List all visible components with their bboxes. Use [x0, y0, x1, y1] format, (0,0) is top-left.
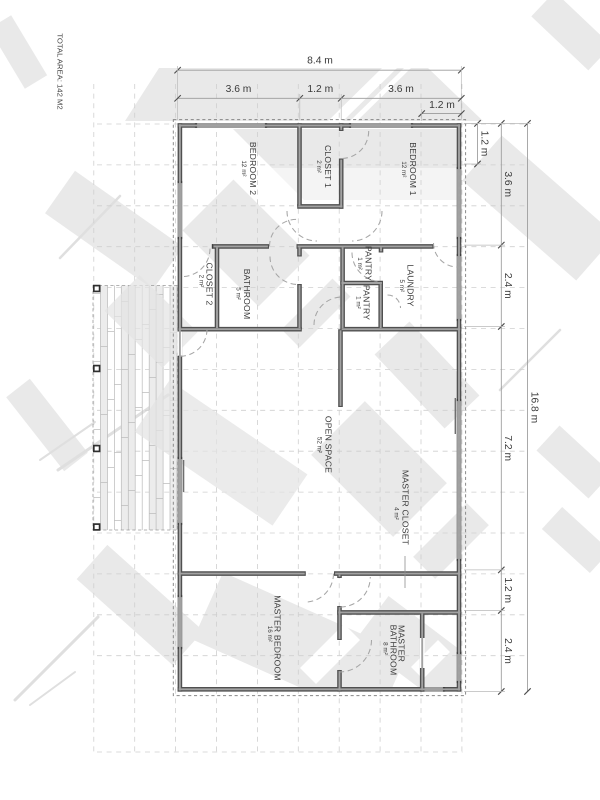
svg-text:1.2 m: 1.2 m [307, 84, 333, 95]
svg-text:1.2 m: 1.2 m [478, 131, 489, 157]
svg-text:5 m²: 5 m² [398, 279, 405, 292]
svg-text:BATHROOM: BATHROOM [389, 625, 399, 676]
svg-text:52 m²: 52 m² [315, 437, 322, 453]
svg-text:PANTRY: PANTRY [362, 285, 372, 320]
svg-text:2 m²: 2 m² [197, 275, 204, 288]
svg-text:CLOSET 2: CLOSET 2 [205, 263, 215, 306]
svg-text:5 m²: 5 m² [235, 287, 242, 300]
svg-text:2.4 m: 2.4 m [502, 273, 513, 299]
svg-text:2.4 m: 2.4 m [502, 638, 513, 664]
svg-text:1.2 m: 1.2 m [429, 100, 455, 111]
svg-text:MASTER CLOSET: MASTER CLOSET [401, 470, 411, 546]
svg-text:PANTRY: PANTRY [364, 246, 374, 281]
svg-text:12 m²: 12 m² [400, 161, 407, 177]
svg-text:BEDROOM 2: BEDROOM 2 [248, 142, 258, 195]
svg-text:1 m²: 1 m² [354, 296, 361, 309]
svg-text:BATHROOM: BATHROOM [242, 269, 252, 320]
svg-text:8 m²: 8 m² [381, 642, 388, 655]
svg-text:3.6 m: 3.6 m [502, 171, 513, 197]
svg-text:3.6 m: 3.6 m [388, 84, 414, 95]
svg-text:3.6 m: 3.6 m [226, 84, 252, 95]
svg-text:1 m²: 1 m² [356, 257, 363, 270]
svg-text:16.8 m: 16.8 m [529, 392, 540, 423]
svg-text:12 m²: 12 m² [240, 160, 247, 176]
svg-text:TOTAL AREA: 142 M2: TOTAL AREA: 142 M2 [55, 33, 64, 109]
svg-text:1.2 m: 1.2 m [502, 577, 513, 603]
svg-text:BEDROOM 1: BEDROOM 1 [408, 142, 418, 195]
svg-text:7.2 m: 7.2 m [502, 435, 513, 461]
svg-text:4 m²: 4 m² [392, 507, 399, 520]
svg-text:OPEN SPACE: OPEN SPACE [323, 416, 333, 473]
svg-text:16 m²: 16 m² [266, 626, 273, 642]
svg-text:MASTER BEDROOM: MASTER BEDROOM [273, 595, 283, 680]
svg-text:8.4 m: 8.4 m [307, 56, 333, 67]
svg-text:2 m²: 2 m² [315, 160, 322, 173]
svg-text:CLOSET 1: CLOSET 1 [323, 145, 333, 188]
svg-text:LAUNDRY: LAUNDRY [406, 264, 416, 306]
